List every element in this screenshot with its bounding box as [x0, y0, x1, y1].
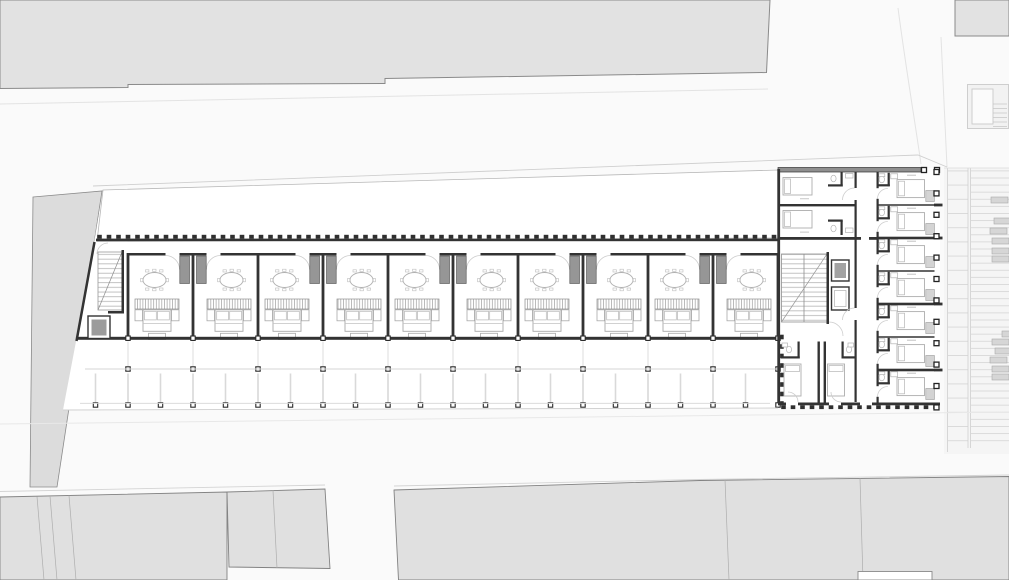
- column: [126, 336, 130, 340]
- north-facade-wall: [96, 235, 778, 241]
- column: [581, 336, 585, 340]
- facade-column: [934, 277, 939, 282]
- wing-west-wall-upper: [777, 169, 780, 238]
- facade-column: [934, 234, 939, 239]
- facade-column: [934, 298, 939, 303]
- facade-column: [934, 319, 939, 324]
- floor-plan-drawing: [0, 0, 1009, 580]
- facade-column: [934, 384, 939, 389]
- room-divider-wall: [877, 270, 935, 272]
- wall-stub: [934, 369, 943, 372]
- wing-west-wall-lower: [777, 330, 780, 403]
- wing-west-wall-mid: [777, 238, 780, 330]
- party-wall: [647, 253, 650, 341]
- party-wall: [712, 253, 715, 341]
- planter: [992, 374, 1009, 380]
- corridor-wall: [877, 199, 879, 205]
- corridor-wall: [877, 205, 879, 221]
- corridor-wall: [877, 337, 879, 353]
- facade-column: [934, 191, 939, 196]
- planter: [992, 366, 1009, 372]
- facade-column: [934, 170, 939, 175]
- column: [646, 336, 650, 340]
- party-wall: [127, 253, 130, 341]
- column: [386, 336, 390, 340]
- column: [711, 336, 715, 340]
- floor-plan-screenshot: [0, 0, 1009, 580]
- corridor-wall: [877, 304, 879, 320]
- facade-column: [934, 255, 939, 260]
- party-wall: [322, 253, 325, 341]
- corridor-wall: [877, 265, 879, 271]
- room-divider-wall: [877, 369, 935, 372]
- planter: [992, 238, 1009, 244]
- facade-column: [934, 212, 939, 217]
- wing-south-wall: [778, 403, 940, 410]
- planter: [1002, 331, 1009, 337]
- room-divider-wall: [877, 237, 935, 240]
- planter: [992, 256, 1009, 262]
- party-wall: [452, 253, 455, 341]
- column: [191, 336, 195, 340]
- party-wall: [582, 253, 585, 341]
- planter: [991, 197, 1008, 203]
- corridor-wall: [877, 238, 879, 254]
- column: [256, 336, 260, 340]
- party-wall: [257, 253, 260, 341]
- corridor-wall: [877, 370, 879, 386]
- planter: [990, 357, 1007, 363]
- party-wall: [192, 253, 195, 341]
- ramp-northeast: [968, 85, 1009, 129]
- planter: [995, 348, 1009, 354]
- column: [451, 336, 455, 340]
- party-wall: [517, 253, 520, 341]
- wing-north-wall: [778, 168, 921, 173]
- facade-column: [934, 341, 939, 346]
- elevator-cab: [835, 263, 847, 278]
- corridor-wall: [877, 331, 879, 337]
- elevator-cab: [92, 320, 107, 336]
- south-room-wall: [78, 337, 778, 340]
- planter: [992, 339, 1009, 345]
- party-wall: [387, 253, 390, 341]
- corridor-wall: [877, 271, 879, 287]
- corridor-wall: [877, 397, 879, 403]
- column: [516, 336, 520, 340]
- planter: [992, 248, 1009, 254]
- facade-column: [934, 362, 939, 367]
- corridor-wall: [877, 172, 879, 188]
- garden-strips: [944, 168, 1009, 454]
- planter: [994, 218, 1009, 224]
- neighbor-building-northeast: [955, 0, 1009, 36]
- facade-column: [934, 405, 939, 410]
- wall-stub: [934, 204, 943, 207]
- room-divider-wall: [877, 336, 935, 338]
- room-divider-wall: [877, 204, 935, 206]
- room-divider-wall: [877, 303, 935, 306]
- column: [321, 336, 325, 340]
- wing-west-teeth: [780, 332, 784, 403]
- planter: [990, 228, 1007, 234]
- courtyard-south: [858, 572, 932, 580]
